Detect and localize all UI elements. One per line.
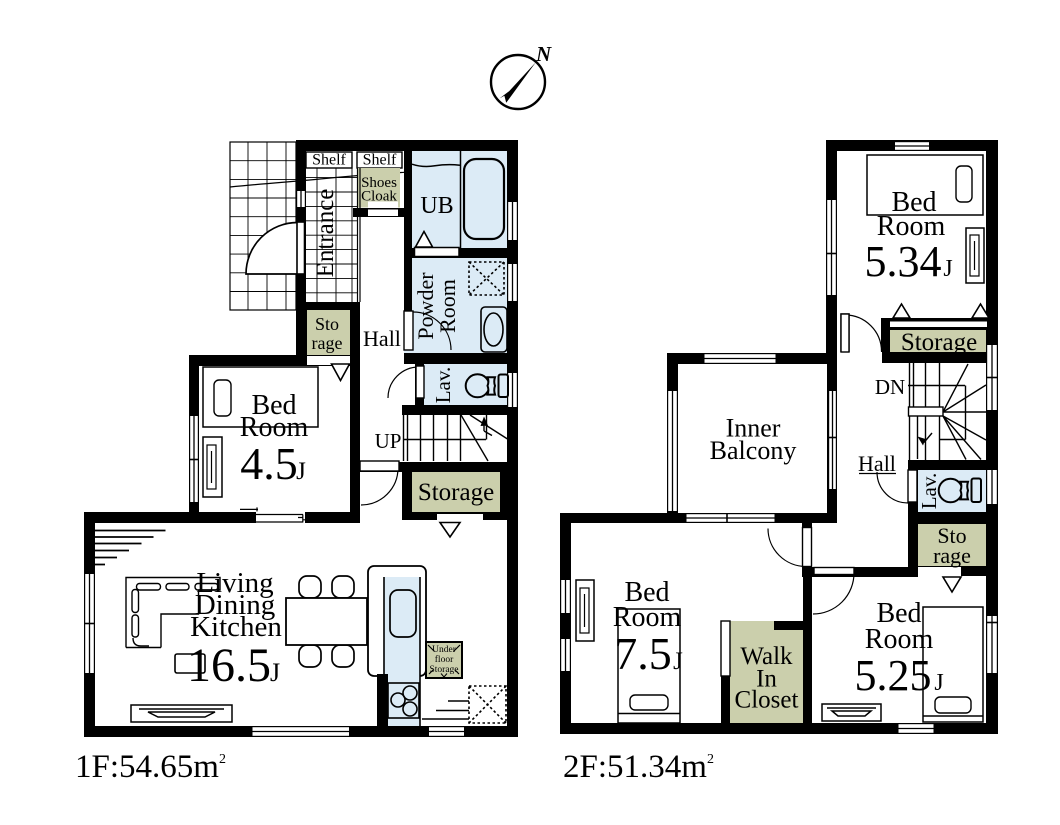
svg-text:Cloak: Cloak <box>361 189 397 205</box>
svg-text:Under: Under <box>432 645 457 655</box>
svg-text:floor: floor <box>435 654 454 665</box>
svg-text:2F:51.34m2: 2F:51.34m2 <box>563 749 714 785</box>
svg-text:Room: Room <box>435 279 460 333</box>
svg-text:N: N <box>535 42 552 66</box>
svg-text:7.5: 7.5 <box>614 628 672 679</box>
svg-text:16.5: 16.5 <box>187 639 271 692</box>
svg-text:Sto: Sto <box>315 314 339 334</box>
svg-text:Hall: Hall <box>858 451 896 476</box>
svg-text:Balcony: Balcony <box>710 436 797 465</box>
svg-text:5.34: 5.34 <box>865 237 942 286</box>
svg-text:UP: UP <box>375 429 402 453</box>
svg-text:1F:54.65m2: 1F:54.65m2 <box>75 749 226 785</box>
svg-text:Lav.: Lav. <box>431 367 455 404</box>
svg-text:Closet: Closet <box>735 687 799 714</box>
svg-text:J: J <box>270 658 280 687</box>
svg-text:5.25: 5.25 <box>855 651 932 700</box>
svg-text:Storage: Storage <box>901 329 977 356</box>
svg-text:J: J <box>943 256 952 282</box>
svg-text:Lav.: Lav. <box>917 473 941 510</box>
svg-text:UB: UB <box>420 193 453 219</box>
svg-text:Shelf: Shelf <box>363 152 397 169</box>
svg-text:Shelf: Shelf <box>312 152 346 169</box>
svg-text:rage: rage <box>312 333 343 353</box>
svg-text:J: J <box>934 670 943 696</box>
svg-text:J: J <box>296 458 306 485</box>
svg-text:DN: DN <box>875 375 905 399</box>
svg-text:Hall: Hall <box>363 326 401 351</box>
svg-text:4.5: 4.5 <box>240 438 298 489</box>
svg-text:Storage: Storage <box>418 479 494 506</box>
svg-text:Storage: Storage <box>429 665 458 675</box>
svg-text:Entrance: Entrance <box>312 189 339 278</box>
svg-text:rage: rage <box>933 543 971 568</box>
svg-text:J: J <box>673 648 683 675</box>
